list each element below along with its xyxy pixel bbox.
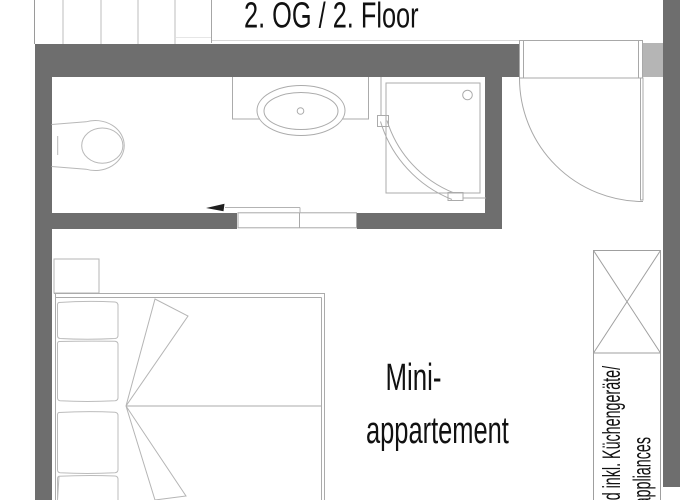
svg-text:appartement: appartement (366, 409, 509, 451)
svg-text:Mini-: Mini- (386, 356, 442, 398)
svg-text:2. OG / 2. Floor: 2. OG / 2. Floor (244, 0, 419, 36)
svg-text:d inkl. Küchengeräte/: d inkl. Küchengeräte/ (598, 366, 626, 500)
svg-text:appliances: appliances (628, 437, 656, 500)
